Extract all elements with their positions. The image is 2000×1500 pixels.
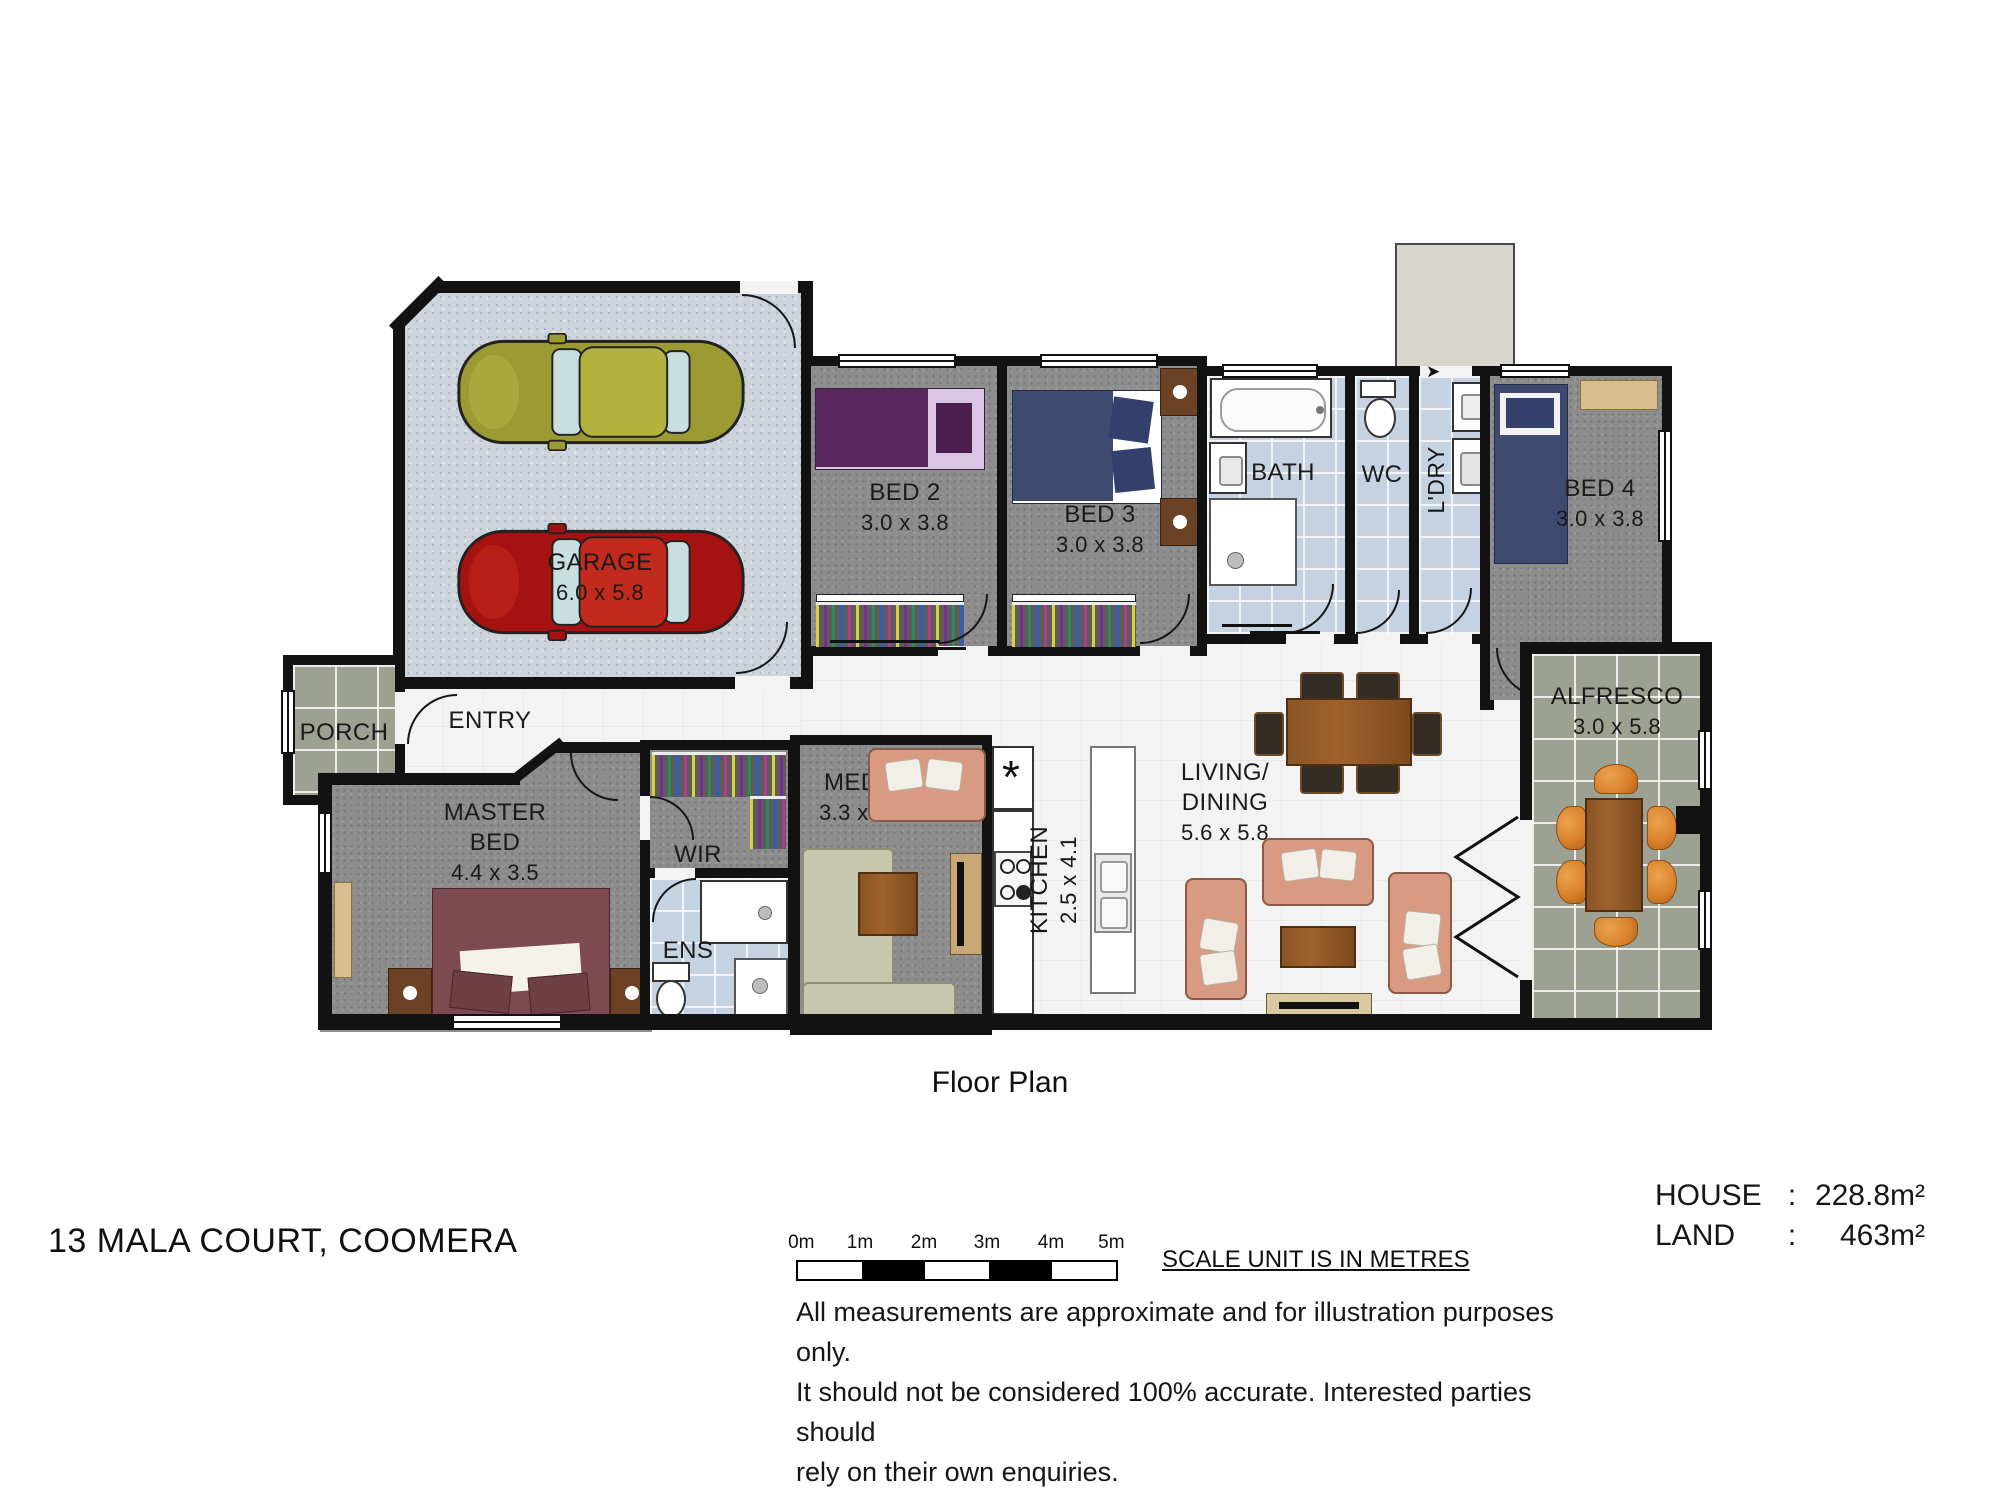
pantry-asterisk: * bbox=[1002, 750, 1020, 804]
bed3-door-opening bbox=[1140, 646, 1190, 656]
window bbox=[452, 1014, 562, 1030]
address-text: 13 MALA COURT, COOMERA bbox=[48, 1222, 688, 1261]
external-pad bbox=[1395, 243, 1515, 377]
outdoor-chair bbox=[1556, 806, 1586, 850]
land-label: LAND bbox=[1655, 1216, 1773, 1256]
vanity-sink bbox=[700, 880, 788, 944]
front-door-opening bbox=[395, 692, 407, 744]
room-name: ENTRY bbox=[425, 706, 555, 736]
room-name: DINING bbox=[1150, 788, 1300, 818]
room-name: WIR bbox=[648, 840, 748, 870]
floor-plan-image: GARAGE 6.0 x 5.8 BED 2 3.0 x 3.8 BED 3 3… bbox=[0, 0, 2000, 1500]
shower bbox=[1209, 498, 1297, 586]
kitchen-label: KITCHEN bbox=[1026, 795, 1054, 965]
window bbox=[1500, 364, 1570, 378]
car-top-view-olive bbox=[455, 333, 747, 451]
dining-chair bbox=[1300, 764, 1344, 794]
window bbox=[1698, 730, 1712, 790]
toilet-bowl bbox=[656, 980, 686, 1018]
cavity-slider-line bbox=[856, 647, 966, 650]
disclaimer-line: rely on their own enquiries. bbox=[796, 1452, 1596, 1492]
stacker-door-zigzag bbox=[1452, 815, 1522, 985]
disclaimer: All measurements are approximate and for… bbox=[796, 1292, 1596, 1492]
scale-tick: 2m bbox=[911, 1232, 937, 1254]
room-name: GARAGE bbox=[480, 548, 720, 578]
master-top-wall-b bbox=[556, 742, 652, 753]
double-bed-maroon bbox=[432, 888, 610, 1020]
outdoor-table bbox=[1585, 798, 1643, 912]
garage-door-opening-bottom bbox=[735, 676, 790, 690]
master-top-wall bbox=[318, 773, 520, 785]
room-name: ENS bbox=[648, 936, 728, 966]
desk-shelf bbox=[1580, 380, 1658, 410]
room-name: BED 3 bbox=[1005, 500, 1195, 530]
floor-plan-caption: Floor Plan bbox=[850, 1066, 1150, 1100]
area-summary: HOUSE : 228.8m² LAND : 463m² bbox=[1655, 1176, 1925, 1256]
outdoor-chair bbox=[1556, 860, 1586, 904]
ens-label: ENS bbox=[648, 936, 728, 966]
outdoor-chair bbox=[1647, 860, 1677, 904]
toilet bbox=[1360, 380, 1396, 398]
sofa-loveseat bbox=[868, 748, 986, 822]
laundry-label: L'DRY bbox=[1423, 405, 1451, 555]
room-name: PORCH bbox=[287, 718, 401, 748]
scale-tick: 0m bbox=[788, 1232, 814, 1254]
disclaimer-line: It should not be considered 100% accurat… bbox=[796, 1372, 1596, 1452]
laundry-door-opening bbox=[1428, 634, 1472, 644]
room-dims: 4.4 x 3.5 bbox=[400, 858, 590, 888]
room-dims: 6.0 x 5.8 bbox=[480, 578, 720, 608]
outdoor-chair bbox=[1647, 806, 1677, 850]
dining-table bbox=[1286, 698, 1412, 766]
robe-hangers bbox=[1012, 602, 1136, 647]
room-name: BED 2 bbox=[810, 478, 1000, 508]
garage-label: GARAGE 6.0 x 5.8 bbox=[480, 548, 720, 608]
room-name: LIVING/ bbox=[1150, 758, 1300, 788]
land-area-row: LAND : 463m² bbox=[1655, 1216, 1925, 1256]
room-dims: 2.5 x 4.1 bbox=[1056, 836, 1081, 924]
house-label: HOUSE bbox=[1655, 1176, 1773, 1216]
house-value: 228.8m² bbox=[1811, 1176, 1925, 1216]
window bbox=[1658, 430, 1672, 542]
alfresco-label: ALFRESCO 3.0 x 5.8 bbox=[1528, 682, 1706, 742]
room-name: BATH bbox=[1225, 458, 1341, 488]
cavity-slider-line bbox=[1250, 631, 1320, 634]
double-bed-navy bbox=[1012, 390, 1162, 504]
garage-door-opening-top bbox=[740, 281, 798, 294]
window bbox=[1222, 364, 1318, 378]
cavity-slider-line bbox=[830, 640, 940, 643]
nightstand bbox=[1160, 368, 1200, 416]
single-bed-purple bbox=[815, 388, 985, 470]
room-name: BED 4 bbox=[1540, 474, 1660, 504]
window bbox=[838, 354, 956, 368]
bed3-label: BED 3 3.0 x 3.8 bbox=[1005, 500, 1195, 560]
robe-hangers bbox=[750, 796, 786, 849]
wall-stub bbox=[1676, 806, 1702, 834]
room-name: KITCHEN bbox=[1026, 826, 1053, 934]
nightstand bbox=[388, 968, 432, 1018]
bed2-label: BED 2 3.0 x 3.8 bbox=[810, 478, 1000, 538]
cavity-slider-line bbox=[1222, 624, 1292, 627]
kitchen-dims: 2.5 x 4.1 bbox=[1056, 825, 1080, 935]
room-dims: 3.0 x 3.8 bbox=[810, 508, 1000, 538]
land-value: 463m² bbox=[1811, 1216, 1925, 1256]
entry-arrow-icon: ➤ bbox=[1426, 362, 1440, 382]
coffee-table bbox=[858, 872, 918, 936]
outdoor-chair bbox=[1594, 764, 1638, 794]
window bbox=[1698, 890, 1712, 950]
robe-hangers bbox=[652, 752, 786, 797]
window bbox=[1040, 354, 1158, 368]
bathtub bbox=[1210, 378, 1332, 438]
window bbox=[318, 812, 332, 874]
sofa-top bbox=[1262, 838, 1374, 906]
sofa-right bbox=[1388, 872, 1452, 994]
bath-label: BATH bbox=[1225, 458, 1341, 488]
dining-chair bbox=[1412, 712, 1442, 756]
porch-label: PORCH bbox=[287, 718, 401, 748]
entry-label: ENTRY bbox=[425, 706, 555, 736]
scale-tick: 4m bbox=[1038, 1232, 1064, 1254]
bench-seat bbox=[334, 882, 352, 978]
room-name: WC bbox=[1347, 460, 1417, 490]
room-dims: 3.0 x 3.8 bbox=[1540, 504, 1660, 534]
room-name: MASTER bbox=[400, 798, 590, 828]
bed4-label: BED 4 3.0 x 3.8 bbox=[1540, 474, 1660, 534]
sofa-left bbox=[1185, 878, 1247, 1000]
living-dining-label: LIVING/ DINING 5.6 x 5.8 bbox=[1150, 758, 1300, 848]
wir-door-opening bbox=[640, 796, 650, 840]
wc-door-opening bbox=[1358, 634, 1400, 644]
coffee-table bbox=[1280, 926, 1356, 968]
outdoor-chair bbox=[1594, 917, 1638, 947]
room-name: L'DRY bbox=[1423, 446, 1449, 513]
scale-bar-strip bbox=[796, 1260, 1118, 1281]
dining-chair bbox=[1254, 712, 1284, 756]
scale-note: SCALE UNIT IS IN METRES bbox=[1162, 1246, 1562, 1274]
bath-door-opening bbox=[1286, 634, 1334, 644]
wc-label: WC bbox=[1347, 460, 1417, 490]
wir-label: WIR bbox=[648, 840, 748, 870]
separator: : bbox=[1773, 1216, 1811, 1256]
ens-door-opening bbox=[655, 868, 695, 878]
dining-chair bbox=[1356, 764, 1400, 794]
house-area-row: HOUSE : 228.8m² bbox=[1655, 1176, 1925, 1216]
scale-tick: 5m bbox=[1098, 1232, 1124, 1254]
tv-cabinet bbox=[950, 853, 982, 955]
shower bbox=[734, 958, 788, 1016]
room-name: BED bbox=[400, 828, 590, 858]
robe-shelf bbox=[1012, 594, 1136, 602]
room-dims: 3.0 x 3.8 bbox=[1005, 530, 1195, 560]
separator: : bbox=[1773, 1176, 1811, 1216]
room-dims: 3.0 x 5.8 bbox=[1528, 712, 1706, 742]
master-left-wall bbox=[318, 773, 332, 1022]
room-name: ALFRESCO bbox=[1528, 682, 1706, 712]
toilet-bowl bbox=[1364, 398, 1396, 438]
disclaimer-line: All measurements are approximate and for… bbox=[796, 1292, 1596, 1372]
scale-tick: 3m bbox=[974, 1232, 1000, 1254]
master-label: MASTER BED 4.4 x 3.5 bbox=[400, 798, 590, 888]
scale-tick: 1m bbox=[847, 1232, 873, 1254]
double-sink bbox=[1094, 853, 1132, 933]
scale-bar: 0m 1m 2m 3m 4m 5m bbox=[796, 1232, 1120, 1286]
